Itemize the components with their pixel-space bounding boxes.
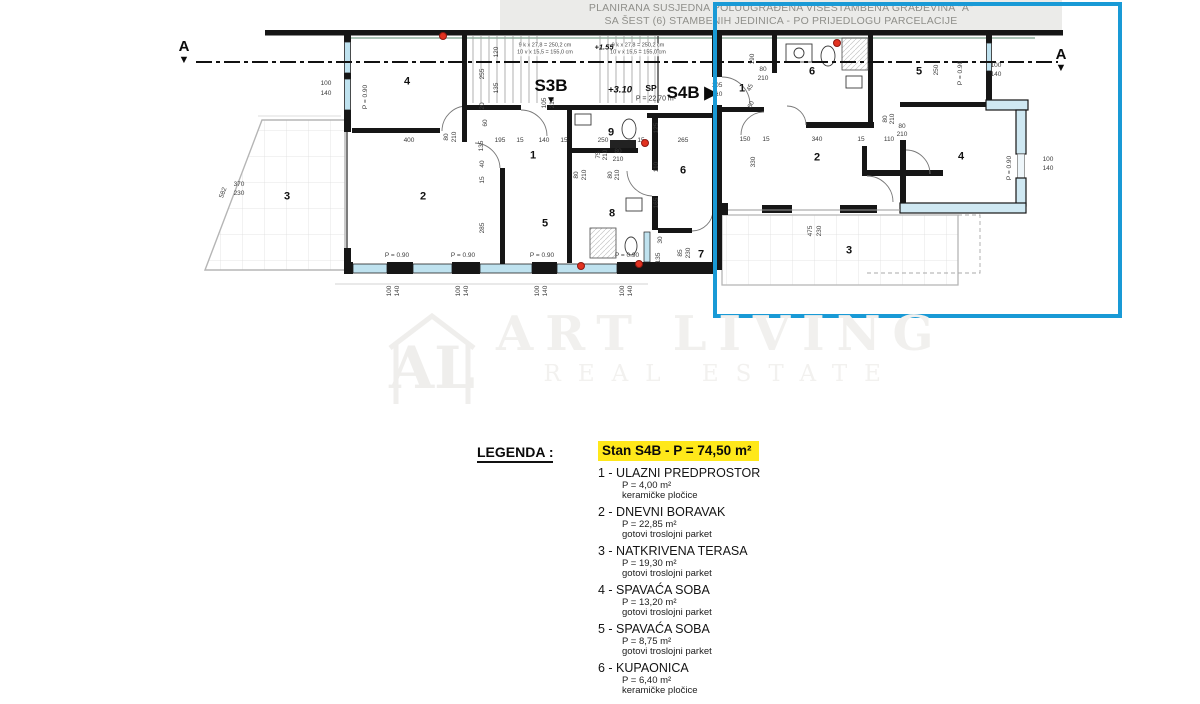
watermark-text: ART LIVING REAL ESTATE xyxy=(496,308,945,387)
plan-dimension-label: 20 xyxy=(480,102,487,109)
plan-dimension-label: 210 xyxy=(582,170,589,181)
plan-dimension-label: 15 xyxy=(560,138,567,145)
plan-dimension-label: 135 xyxy=(656,253,663,264)
plan-dimension-label: 10 v x 15,5 = 155,0 cm xyxy=(516,50,574,56)
plan-dimension-label: +3.10 xyxy=(608,85,632,95)
legend-item: 1 - ULAZNI PREDPROSTOR P = 4,00 m² keram… xyxy=(598,467,888,502)
red-marker-icon xyxy=(635,260,643,268)
plan-dimension-label: 210 xyxy=(613,157,624,164)
highlight-rectangle xyxy=(713,2,1122,318)
room-floor: gotovi troslojni parket xyxy=(622,569,888,580)
plan-dimension-label: P = 0.90 xyxy=(363,85,370,109)
legend-item: 4 - SPAVAĆA SOBA P = 13,20 m² gotovi tro… xyxy=(598,584,888,619)
watermark: AL ART LIVING REAL ESTATE xyxy=(382,308,945,410)
plan-dimension-label: 210 xyxy=(452,132,459,143)
room-name: 3 - NATKRIVENA TERASA xyxy=(598,545,888,559)
plan-dimension-label: P = 0.90 xyxy=(615,253,639,260)
room-number-label: 8 xyxy=(609,209,615,220)
plan-dimension-label: 285 xyxy=(480,223,487,234)
unit-s3b-arrow-icon: ▼ xyxy=(534,96,567,106)
plan-dimension-label: 140 xyxy=(395,286,402,297)
room-number-label: 2 xyxy=(420,192,426,203)
room-number-label: 1 xyxy=(530,151,536,162)
plan-dimension-label: 15 xyxy=(480,176,487,183)
unit-s3b-text: S3B xyxy=(534,77,567,94)
room-floor: gotovi troslojni parket xyxy=(622,608,888,619)
section-marker-letter: A xyxy=(179,39,190,54)
plan-dimension-label: P = 0.90 xyxy=(530,253,554,260)
plan-dimension-label: 80 xyxy=(444,133,451,140)
legend-item: 3 - NATKRIVENA TERASA P = 19,30 m² gotov… xyxy=(598,545,888,580)
legend-heading: LEGENDA : xyxy=(477,444,553,463)
plan-dimension-label: 100 xyxy=(387,286,394,297)
plan-dimension-label: 110 xyxy=(654,162,661,172)
svg-text:AL: AL xyxy=(388,334,475,402)
plan-dimension-label: 60 xyxy=(483,119,490,126)
red-marker-icon xyxy=(577,262,585,270)
room-floor: gotovi troslojni parket xyxy=(622,530,888,541)
plan-dimension-label: 80 xyxy=(614,149,621,156)
room-number-label: 4 xyxy=(404,77,410,88)
plan-dimension-label: 195 xyxy=(495,138,506,145)
unit-label-s3b: S3B ▼ xyxy=(534,77,567,106)
plan-dimension-label: 125 xyxy=(654,123,661,134)
legend-items: 1 - ULAZNI PREDPROSTOR P = 4,00 m² keram… xyxy=(598,467,888,701)
room-number-label: 7 xyxy=(698,250,704,261)
room-number-label: 5 xyxy=(542,219,548,230)
plan-dimension-label: 80 xyxy=(574,171,581,178)
plan-dimension-label: P = 0.90 xyxy=(451,253,475,260)
plan-dimension-label: 230 xyxy=(686,248,693,259)
plan-dimension-label: 30 xyxy=(658,236,665,243)
room-name: 4 - SPAVAĆA SOBA xyxy=(598,584,888,598)
plan-dimension-label: 140 xyxy=(539,138,550,145)
plan-dimension-label: 230 xyxy=(234,191,245,198)
legend-item: 5 - SPAVAĆA SOBA P = 8,75 m² gotovi tros… xyxy=(598,623,888,658)
plan-dimension-label: 400 xyxy=(404,138,415,145)
plan-dimension-label: 210 xyxy=(603,150,610,161)
room-name: 1 - ULAZNI PREDPROSTOR xyxy=(598,467,888,481)
plan-dimension-label: 140 xyxy=(464,286,471,297)
plan-dimension-label: P = 0.90 xyxy=(385,253,409,260)
room-number-label: 6 xyxy=(680,166,686,177)
plan-dimension-label: 100 xyxy=(535,286,542,297)
plan-dimension-label: 135 xyxy=(479,141,486,152)
plan-dimension-label: 120 xyxy=(494,47,501,58)
room-number-label: 9 xyxy=(608,128,614,139)
room-name: 5 - SPAVAĆA SOBA xyxy=(598,623,888,637)
page: { "header": { "line1": "PLANIRANA SUSJED… xyxy=(0,0,1200,704)
plan-dimension-label: 10 v x 15,5 = 155,0 cm xyxy=(609,50,667,56)
plan-dimension-label: 140 xyxy=(321,91,332,98)
plan-dimension-label: +1.55 xyxy=(595,43,614,51)
plan-dimension-label: 265 xyxy=(678,138,689,145)
plan-dimension-label: 250 xyxy=(598,138,609,145)
plan-dimension-label: 100 xyxy=(620,286,627,297)
plan-dimension-label: 140 xyxy=(628,286,635,297)
plan-dimension-label: 135 xyxy=(494,83,501,94)
room-name: 6 - KUPAONICA xyxy=(598,662,888,676)
watermark-logo: AL xyxy=(382,308,482,410)
legend-title: Stan S4B - P = 74,50 m² xyxy=(598,441,759,461)
unit-label-s4b: S4B ▶ xyxy=(667,84,718,101)
room-floor: keramičke pločice xyxy=(622,491,888,502)
plan-dimension-label: 85 xyxy=(678,249,685,256)
room-number-label: 3 xyxy=(284,192,290,203)
plan-dimension-label: 100 xyxy=(456,286,463,297)
watermark-line-2: REAL ESTATE xyxy=(496,361,945,387)
unit-s4b-text: S4B ▶ xyxy=(667,84,718,101)
plan-dimension-label: 255 xyxy=(480,69,487,80)
watermark-line-1: ART LIVING xyxy=(496,308,945,361)
red-marker-icon xyxy=(439,32,447,40)
plan-dimension-label: 100 xyxy=(321,81,332,88)
plan-dimension-label: SP xyxy=(645,84,656,93)
red-marker-icon xyxy=(641,139,649,147)
legend-item: 6 - KUPAONICA P = 6,40 m² keramičke ploč… xyxy=(598,662,888,697)
plan-dimension-label: 15 xyxy=(516,138,523,145)
plan-dimension-label: 40 xyxy=(480,160,487,167)
plan-dimension-label: 9 k x 27,8 = 250,2 cm xyxy=(611,43,666,49)
legend-item: 2 - DNEVNI BORAVAK P = 22,85 m² gotovi t… xyxy=(598,506,888,541)
room-floor: gotovi troslojni parket xyxy=(622,647,888,658)
plan-dimension-label: 165 xyxy=(654,198,661,209)
room-name: 2 - DNEVNI BORAVAK xyxy=(598,506,888,520)
plan-dimension-label: 140 xyxy=(543,286,550,297)
plan-dimension-label: 210 xyxy=(615,170,622,181)
plan-dimension-label: 9 k x 27,8 = 250,2 cm xyxy=(518,43,573,49)
section-marker-triangle-icon: ▼ xyxy=(179,55,190,66)
room-floor: keramičke pločice xyxy=(622,686,888,697)
plan-dimension-label: 370 xyxy=(234,182,245,189)
section-marker-a-left: A ▼ xyxy=(179,39,190,66)
